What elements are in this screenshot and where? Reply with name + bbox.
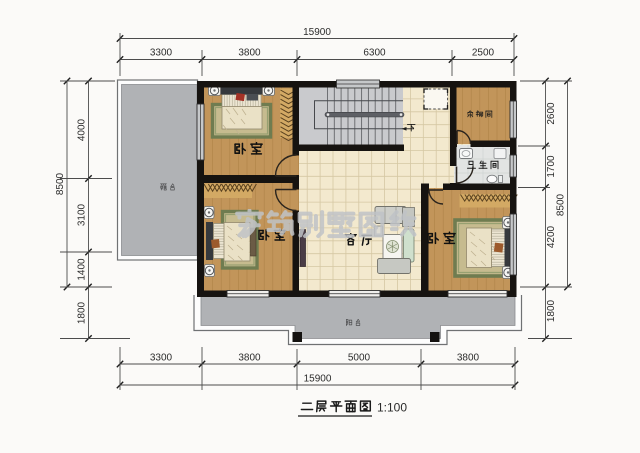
svg-text:1800: 1800 xyxy=(546,299,557,322)
svg-text:8500: 8500 xyxy=(556,193,567,216)
svg-text:4000: 4000 xyxy=(77,118,88,141)
svg-text:3100: 3100 xyxy=(77,203,88,226)
svg-text:3300: 3300 xyxy=(150,353,173,364)
svg-text:1400: 1400 xyxy=(77,258,88,281)
svg-text:15900: 15900 xyxy=(303,27,331,38)
svg-text:3800: 3800 xyxy=(457,353,480,364)
svg-text:1700: 1700 xyxy=(546,155,557,178)
svg-text:2500: 2500 xyxy=(472,48,495,59)
svg-text:3800: 3800 xyxy=(238,353,261,364)
svg-text:1800: 1800 xyxy=(77,301,88,324)
svg-text:15900: 15900 xyxy=(304,374,332,385)
svg-text:6300: 6300 xyxy=(363,48,386,59)
svg-text:2600: 2600 xyxy=(546,102,557,125)
svg-text:8500: 8500 xyxy=(55,172,66,195)
svg-text:5000: 5000 xyxy=(348,353,371,364)
svg-text:3800: 3800 xyxy=(238,48,261,59)
svg-text:3300: 3300 xyxy=(150,48,173,59)
svg-text:4200: 4200 xyxy=(546,225,557,248)
svg-text:1:100: 1:100 xyxy=(377,401,407,415)
